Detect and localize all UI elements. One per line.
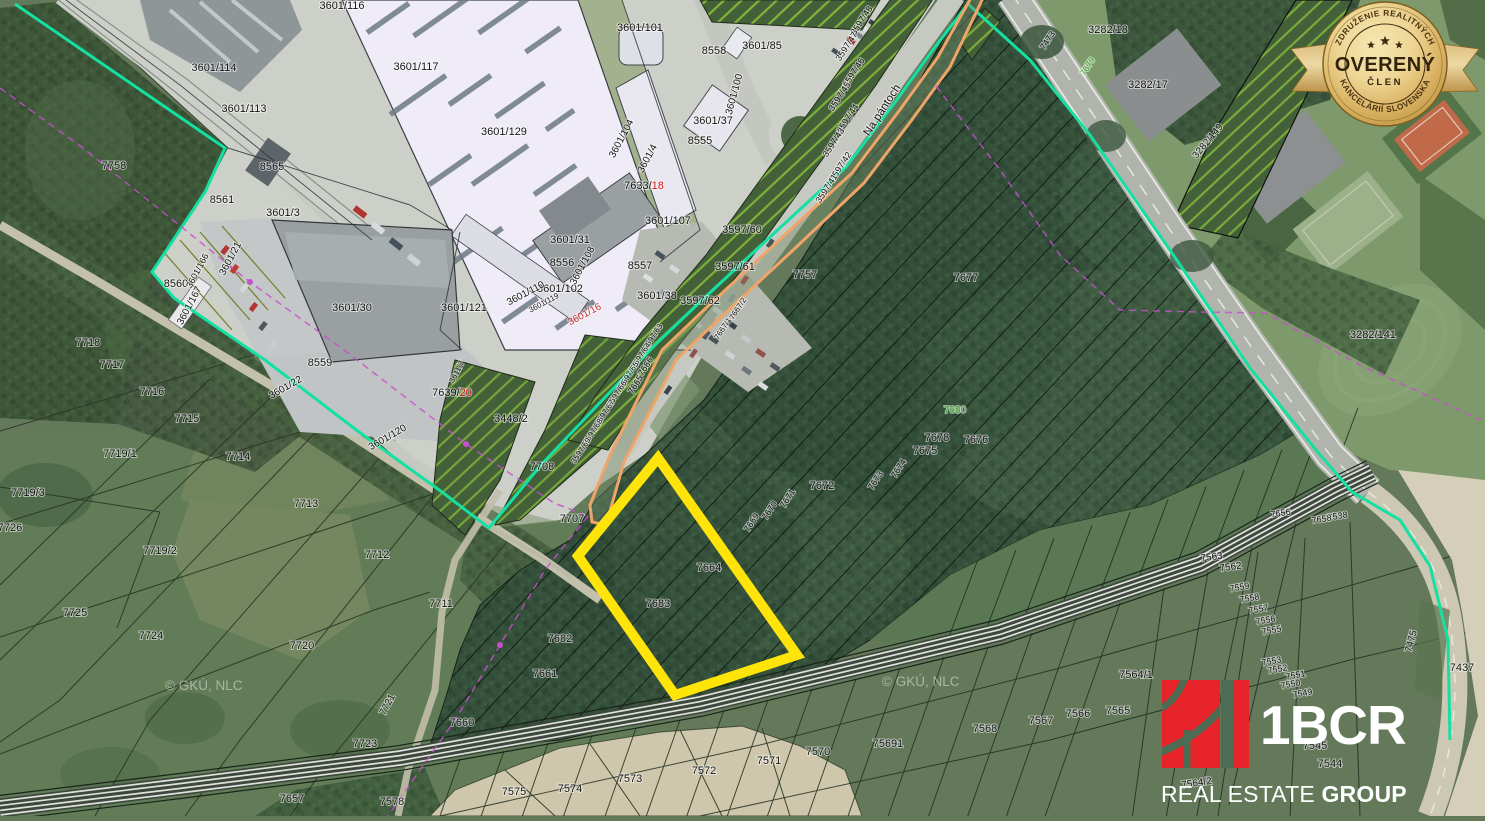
svg-text:3601/37: 3601/37 <box>693 115 733 127</box>
svg-text:7712: 7712 <box>365 549 389 561</box>
svg-text:7657: 7657 <box>280 793 304 805</box>
svg-text:7571: 7571 <box>757 755 781 767</box>
svg-text:3601/38: 3601/38 <box>637 290 677 302</box>
svg-text:© GKÚ, NLC: © GKÚ, NLC <box>882 674 960 689</box>
svg-text:7633/18: 7633/18 <box>624 180 664 192</box>
svg-text:3597/62: 3597/62 <box>680 295 720 307</box>
svg-text:7682: 7682 <box>548 633 572 645</box>
svg-text:7677: 7677 <box>954 272 978 284</box>
svg-text:3601/3: 3601/3 <box>266 207 300 219</box>
svg-text:7568: 7568 <box>973 723 997 735</box>
svg-text:3282/141: 3282/141 <box>1350 329 1396 341</box>
svg-text:7720: 7720 <box>290 640 314 652</box>
svg-text:7676: 7676 <box>964 434 988 446</box>
svg-text:7719/1: 7719/1 <box>103 448 137 460</box>
svg-text:7664: 7664 <box>697 562 721 574</box>
svg-text:8558: 8558 <box>702 45 726 57</box>
svg-text:7573: 7573 <box>618 773 642 785</box>
svg-text:7639/20: 7639/20 <box>432 387 472 399</box>
svg-text:3601/117: 3601/117 <box>393 61 438 73</box>
svg-text:7683: 7683 <box>646 598 670 610</box>
svg-text:8555: 8555 <box>688 135 712 147</box>
svg-text:7566: 7566 <box>1066 708 1090 720</box>
svg-text:3282/17: 3282/17 <box>1128 79 1168 91</box>
svg-text:7716: 7716 <box>140 386 164 398</box>
svg-text:7675: 7675 <box>913 445 937 457</box>
svg-text:3448/2: 3448/2 <box>494 413 528 425</box>
svg-text:7757: 7757 <box>793 269 817 281</box>
svg-text:7711: 7711 <box>429 598 453 610</box>
svg-text:7544: 7544 <box>1318 758 1342 770</box>
svg-text:7572: 7572 <box>692 765 716 777</box>
svg-text:REAL ESTATE GROUP: REAL ESTATE GROUP <box>1161 781 1407 807</box>
svg-text:8556: 8556 <box>550 257 574 269</box>
svg-text:7708: 7708 <box>530 461 554 473</box>
svg-text:7680: 7680 <box>944 405 967 416</box>
svg-text:8561: 8561 <box>210 194 234 206</box>
svg-text:7574: 7574 <box>558 783 582 795</box>
svg-text:OVERENÝ: OVERENÝ <box>1335 52 1436 76</box>
svg-text:3601/85: 3601/85 <box>742 40 782 52</box>
svg-text:7718: 7718 <box>76 337 100 349</box>
svg-text:7715: 7715 <box>175 413 199 425</box>
svg-text:7724: 7724 <box>139 630 163 642</box>
svg-text:3597/61: 3597/61 <box>715 261 755 273</box>
svg-text:7717: 7717 <box>100 359 124 371</box>
svg-text:7570: 7570 <box>806 746 830 758</box>
svg-text:3601/129: 3601/129 <box>481 126 527 138</box>
svg-text:7758: 7758 <box>102 160 126 172</box>
svg-text:3601/101: 3601/101 <box>617 22 663 34</box>
svg-text:7672: 7672 <box>810 480 834 492</box>
svg-text:7719/3: 7719/3 <box>11 487 45 499</box>
svg-text:7565: 7565 <box>1106 705 1130 717</box>
svg-text:7719/2: 7719/2 <box>143 545 177 557</box>
svg-text:3601/121: 3601/121 <box>441 302 487 314</box>
svg-text:3601/107: 3601/107 <box>645 215 691 227</box>
svg-text:8565: 8565 <box>260 161 284 173</box>
svg-text:7713: 7713 <box>294 498 318 510</box>
svg-text:3282/18: 3282/18 <box>1088 24 1128 36</box>
svg-text:7578: 7578 <box>380 796 404 808</box>
svg-text:3601/113: 3601/113 <box>221 103 266 115</box>
svg-text:7714: 7714 <box>226 451 250 463</box>
svg-text:7725: 7725 <box>63 607 87 619</box>
svg-text:7723: 7723 <box>353 738 377 750</box>
svg-text:ČLEN: ČLEN <box>1367 76 1403 88</box>
svg-text:8559: 8559 <box>308 357 332 369</box>
svg-text:7567: 7567 <box>1029 715 1053 727</box>
svg-text:© GKÚ, NLC: © GKÚ, NLC <box>165 678 243 693</box>
svg-text:7575: 7575 <box>502 786 526 798</box>
svg-text:7707: 7707 <box>560 513 584 525</box>
svg-text:1BCR: 1BCR <box>1260 694 1406 756</box>
svg-text:7564/1: 7564/1 <box>1119 669 1153 681</box>
svg-text:3601/31: 3601/31 <box>550 234 590 246</box>
svg-text:7660: 7660 <box>450 717 474 729</box>
svg-text:3597/60: 3597/60 <box>722 224 762 236</box>
svg-text:7661: 7661 <box>533 668 557 680</box>
svg-text:3601/116: 3601/116 <box>319 0 364 12</box>
svg-text:3601/114: 3601/114 <box>191 62 236 74</box>
svg-text:7726: 7726 <box>0 522 22 534</box>
svg-text:7678: 7678 <box>925 432 949 444</box>
svg-text:7437: 7437 <box>1450 662 1474 674</box>
svg-text:8557: 8557 <box>628 260 652 272</box>
svg-text:3601/30: 3601/30 <box>332 302 372 314</box>
svg-text:75691: 75691 <box>873 738 904 750</box>
